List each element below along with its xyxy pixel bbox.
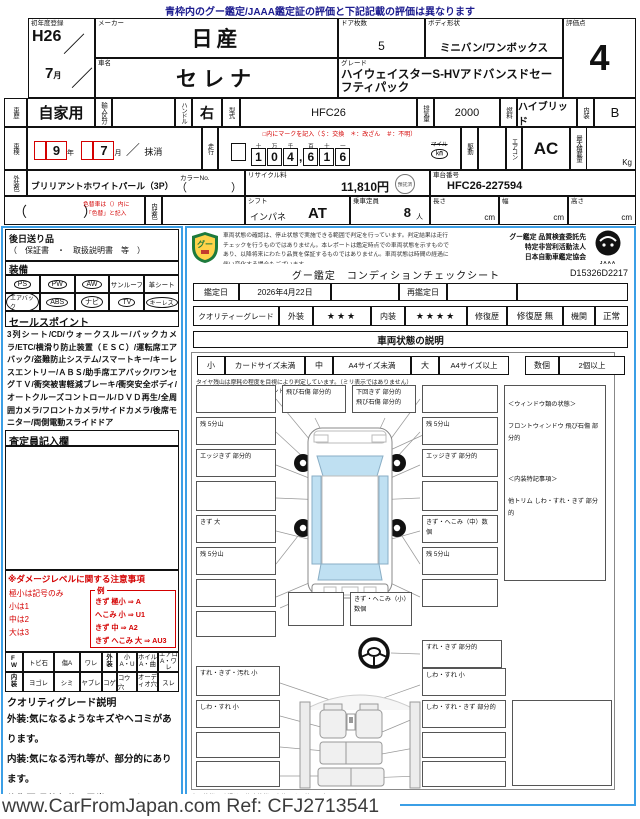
legend-large: 大 — [411, 356, 439, 375]
mileage-mark-note: □内にマークを記入（＄：交換 ＊：改ざん ＃：不明） — [219, 129, 460, 138]
equipment-item: 革シート — [144, 275, 179, 293]
drive-label: 駆動 — [461, 127, 478, 170]
sheet-disclaimer: 車両状態の確認は、停止状態で実施できる範囲で判定を行っています。判定結果は走行チ… — [223, 232, 451, 264]
svg-text:グー: グー — [197, 239, 213, 249]
ext-color-cell: ブリリアントホワイトパール（3P） カラーNo. （ ） — [27, 170, 245, 196]
date-value: 2026年4月22日 — [239, 283, 331, 301]
color-no-paren: （ ） — [176, 179, 242, 195]
equipment-item: エアバック — [5, 293, 40, 311]
maker-label: メーカー — [98, 20, 124, 27]
legend-count-desc: 2個以上 — [559, 356, 625, 375]
damage-label — [196, 732, 280, 758]
damage-label — [422, 385, 498, 413]
fuel-value: ハイブリッド — [517, 98, 577, 127]
payload-cell: 最大積載量 Kg — [570, 127, 636, 170]
damage-label: すれ・きず・汚れ 小 — [196, 666, 280, 696]
condition-title: 車両状態の説明 — [193, 331, 628, 348]
window-notes-text: フロントウィンドウ 飛び石傷 部分的 — [508, 421, 602, 443]
damage-label: きず 大 — [196, 515, 276, 543]
qgrade-ext-label: 外装 — [279, 306, 313, 326]
capacity-label: 乗車定員 — [353, 198, 379, 205]
damage-label — [196, 761, 280, 787]
car-top-view — [294, 428, 406, 598]
mileage-cell: □内にマークを記入（＄：交換 ＊：改ざん ＃：不明） 十1万0千4,百6十1一6… — [218, 127, 461, 170]
shift-label: シフト — [248, 198, 268, 205]
cell-maker: メーカー 日産 — [95, 18, 338, 58]
score-value: 4 — [564, 19, 635, 97]
sheet-number: D15326D2217 — [520, 268, 628, 278]
qgrade-repair-value: 修復歴 無 — [507, 306, 563, 326]
qgrade-ext-stars: ★★★ — [313, 306, 371, 326]
displacement-value: 2000 — [434, 98, 500, 127]
damage-notes-title: ※ダメージレベルに関する注意事項 — [6, 571, 178, 585]
damage-label — [196, 611, 276, 637]
damage-label: エッジきず 部分的 — [196, 449, 276, 477]
odometer-unit: マイル ㎞ — [431, 142, 448, 159]
first-reg-month: 7月 — [45, 65, 61, 82]
org-block: グー鑑定 品質検査委託先 特定非営利活動法人 日本自動車鑑定協会 — [452, 233, 586, 263]
equipment-item: TV — [109, 293, 144, 311]
qgrade-int-label: 内装 — [371, 306, 405, 326]
equipment-grid: PS PW AW サンルーフ 革シート エアバック ABS ナビ TV キーレス — [5, 275, 179, 311]
window-notes-title: ＜ウィンドウ類の状態＞ — [508, 399, 602, 410]
shift-cell: シフト インパネ AT — [245, 196, 350, 225]
first-reg-year: H26 — [32, 28, 61, 46]
damage-label: しわ・すれ・きず 部分的 — [422, 700, 506, 728]
import-value — [112, 98, 175, 127]
later-items-text: （ 保証書 ・ 取扱説明書 等 ） — [6, 245, 178, 256]
shaken-mark-box — [34, 141, 46, 160]
height-cell: 高さ cm — [568, 196, 636, 225]
damage-example-title: 例 — [95, 585, 107, 596]
later-items-box: 後日送り品 （ 保証書 ・ 取扱説明書 等 ） — [5, 229, 179, 261]
history-label: 車歴 — [4, 98, 27, 127]
length-label: 長さ — [433, 198, 446, 205]
equipment-item: ナビ — [75, 293, 110, 311]
damage-label: 下回きず 部分的 飛び石傷 部分的 — [352, 385, 416, 413]
int-color-value — [162, 196, 245, 225]
displacement-label: 排気量 — [417, 98, 434, 127]
interior-grade-value: B — [594, 98, 636, 127]
damage-label — [288, 592, 344, 626]
recycle-stamp: 預託済 — [395, 174, 415, 194]
equipment-item: PS — [5, 275, 40, 293]
damage-label: 残 5分山 — [422, 417, 498, 445]
watermark: www.CarFromJapan.com Ref: CFJ2713541 — [0, 794, 400, 819]
aircon-label: エアコン — [506, 127, 522, 170]
car-name-label: 車名 — [98, 60, 111, 67]
damage-label — [422, 481, 498, 511]
damage-label — [196, 579, 276, 607]
shift-value: AT — [308, 205, 327, 222]
damage-label: 飛び石傷 部分的 — [282, 385, 346, 413]
shaken-note: 抹消 — [144, 147, 162, 157]
damage-label — [422, 579, 498, 607]
equipment-item: AW — [75, 275, 110, 293]
damage-label: しわ・すれ 小 — [196, 700, 280, 728]
later-items-title: 後日送り品 — [6, 230, 178, 245]
date-blank — [331, 283, 399, 301]
damage-label: 残 5分山 — [422, 547, 498, 575]
width-unit: cm — [553, 213, 564, 222]
redate-blank — [517, 283, 628, 301]
abbreviation-table: F W トビ石 傷A ワレ 外 装 小 A・U ホイル A・曲 エアロ A・ワレ… — [5, 652, 179, 692]
damage-label — [422, 761, 506, 787]
fuel-label: 燃料 — [500, 98, 517, 127]
car-interior-view — [300, 695, 420, 788]
interior-notes-text: 他トリム しわ・すれ・きず 部分的 — [508, 496, 602, 518]
sales-points-text: 3列シート/CD/ウォークスルー/バックカメラ/ETC/横滑り防止装置（ＥＳＣ）… — [5, 329, 179, 430]
body-shape-label: ボディ形状 — [428, 20, 460, 27]
qgrade-label: クオリティーグレード — [193, 306, 279, 326]
cell-first-registration: 初年度登録 H26 ／ 7月 ／ — [28, 18, 95, 98]
auction-sheet: 青枠内のグー鑑定/JAAA鑑定証の評価と下記記載の評価は異なります 初年度登録 … — [0, 0, 640, 819]
shaken-label: 車検 — [4, 127, 27, 170]
legend-mid-desc: A4サイズ未満 — [333, 356, 411, 375]
model-label: 型式 — [222, 98, 240, 127]
top-notice: 青枠内のグー鑑定/JAAA鑑定証の評価と下記記載の評価は異なります — [0, 3, 640, 18]
vin-label: 車台番号 — [433, 172, 459, 179]
odometer: 十1万0千4,百6十1一6 — [231, 143, 351, 166]
damage-label — [196, 385, 276, 413]
shaken-mark-box — [81, 141, 93, 160]
date-label: 鑑定日 — [193, 283, 239, 301]
equipment-item: サンルーフ — [109, 275, 144, 293]
shaken-value: 9年 7月 ／ 抹消 — [27, 127, 202, 170]
equipment-item: キーレス — [144, 293, 179, 311]
equipment-title: 装備 — [5, 261, 179, 275]
grade-label: グレード — [341, 60, 367, 67]
score-label: 評価点 — [566, 20, 586, 27]
damage-label — [196, 481, 276, 511]
drive-value — [478, 127, 506, 170]
legend-mid: 中 — [305, 356, 333, 375]
repaint-note: 色替車は（）内に「色替」と記入 — [83, 201, 129, 218]
inspector-notes-space — [5, 446, 179, 570]
payload-unit: Kg — [622, 158, 632, 167]
damage-label: エッジきず 部分的 — [422, 449, 498, 477]
legend-small-desc: カードサイズ未満 — [225, 356, 305, 375]
maker-value: 日産 — [96, 19, 337, 57]
equipment-item: PW — [40, 275, 75, 293]
grade-value: ハイウェイスターS-HVアドバンスドセーフティパック — [339, 59, 562, 95]
height-label: 高さ — [571, 198, 584, 205]
height-unit: cm — [621, 213, 632, 222]
jaaa-logo: JAAA — [592, 229, 624, 265]
cell-car-name: 車名 セレナ — [95, 58, 338, 98]
ext-color-label: 外装色 — [4, 170, 27, 196]
shaken-month: 7 — [93, 141, 114, 160]
width-cell: 幅 cm — [499, 196, 568, 225]
cell-body-shape: ボディ形状 ミニバン/ワンボックス — [425, 18, 563, 58]
damage-example-lines: きず 極小 ⇒ A へこみ 小 ⇒ U1 きず 中 ⇒ A2 きず へこみ 大 … — [91, 591, 175, 647]
vin-value: HFC26-227594 — [447, 180, 522, 192]
vin-cell: 車台番号 HFC26-227594 — [430, 170, 636, 196]
damage-label: 残 5分山 — [196, 547, 276, 575]
repaint-cell: （ ） 色替車は（）内に「色替」と記入 — [4, 196, 145, 225]
width-label: 幅 — [502, 198, 509, 205]
length-cell: 長さ cm — [430, 196, 499, 225]
int-color-label: 内装色 — [145, 196, 162, 225]
capacity-value: 8 — [404, 205, 411, 220]
recycle-label: リサイクル料 — [248, 172, 287, 179]
handle-label: ハンドル — [175, 98, 192, 127]
mileage-label: 走行 — [202, 127, 218, 170]
cell-doors: ドア枚数 5 — [338, 18, 425, 58]
notes-panel: ＜ウィンドウ類の状態＞ フロントウィンドウ 飛び石傷 部分的 ＜内装特記事項＞ … — [504, 385, 606, 581]
damage-label — [422, 732, 506, 758]
goo-kantei-logo: グー — [191, 231, 219, 264]
first-reg-label: 初年度登録 — [31, 20, 64, 27]
equipment-item: ABS — [40, 293, 75, 311]
redate-value — [447, 283, 517, 301]
handle-value: 右 — [192, 98, 222, 127]
qgrade-int-stars: ★★★★ — [405, 306, 467, 326]
legend-large-desc: A4サイズ以上 — [439, 356, 509, 375]
damage-label: きず・へこみ（小）数個 — [350, 592, 412, 626]
legend-count: 数個 — [525, 356, 559, 375]
damage-label-steering: すれ・きず 部分的 — [422, 640, 502, 668]
ext-color-value: ブリリアントホワイトパール（3P） — [31, 179, 173, 192]
qgrade-repair-label: 修復歴 — [467, 306, 507, 326]
damage-label: 残 5分山 — [196, 417, 276, 445]
damage-notes-box: ※ダメージレベルに関する注意事項 極小は記号のみ 小は1 中は2 大は3 例 き… — [5, 570, 179, 652]
recycle-fee: 11,810円 — [341, 178, 389, 195]
quality-grade-title: クオリティグレード説明 — [7, 694, 181, 709]
sales-points-title: セールスポイント — [5, 311, 179, 327]
aircon-value: AC — [522, 127, 570, 170]
damage-label: しわ・すれ 小 — [422, 668, 506, 696]
redate-label: 再鑑定日 — [399, 283, 447, 301]
payload-label: 最大積載量 — [571, 128, 587, 169]
interior-grade-label: 内装 — [577, 98, 594, 127]
qgrade-engine-label: 機関 — [563, 306, 595, 326]
qgrade-engine-value: 正常 — [595, 306, 628, 326]
slash: ／ — [63, 27, 85, 59]
capacity-unit: 人 — [416, 212, 423, 222]
damage-example-box: 例 きず 極小 ⇒ A へこみ 小 ⇒ U1 きず 中 ⇒ A2 きず へこみ … — [90, 590, 176, 648]
capacity-cell: 乗車定員 8 人 — [350, 196, 430, 225]
steering-wheel-icon — [360, 639, 388, 667]
cell-grade: グレード ハイウェイスターS-HVアドバンスドセーフティパック — [338, 58, 563, 98]
inspector-notes-title: 査定員記入欄 — [5, 430, 179, 446]
shaken-year: 9 — [46, 141, 67, 160]
damage-legend: 極小は記号のみ 小は1 中は2 大は3 — [9, 587, 64, 639]
odometer-mark-box — [231, 143, 246, 161]
damage-label: きず・へこみ（中）数個 — [422, 515, 498, 543]
recycle-cell: リサイクル料 11,810円 預託済 — [245, 170, 430, 196]
cell-score: 評価点 4 — [563, 18, 636, 98]
import-label: 輸入区分 — [95, 98, 112, 127]
slash: ／ — [71, 61, 93, 93]
model-value: HFC26 — [240, 98, 417, 127]
damage-label-extra — [512, 700, 612, 786]
doors-label: ドア枚数 — [341, 20, 367, 27]
interior-notes-title: ＜内装特記事項＞ — [508, 474, 602, 485]
history-value: 自家用 — [27, 98, 95, 127]
car-name-value: セレナ — [96, 59, 337, 97]
length-unit: cm — [484, 213, 495, 222]
shift-type: インパネ — [250, 210, 286, 223]
legend-small: 小 — [197, 356, 225, 375]
